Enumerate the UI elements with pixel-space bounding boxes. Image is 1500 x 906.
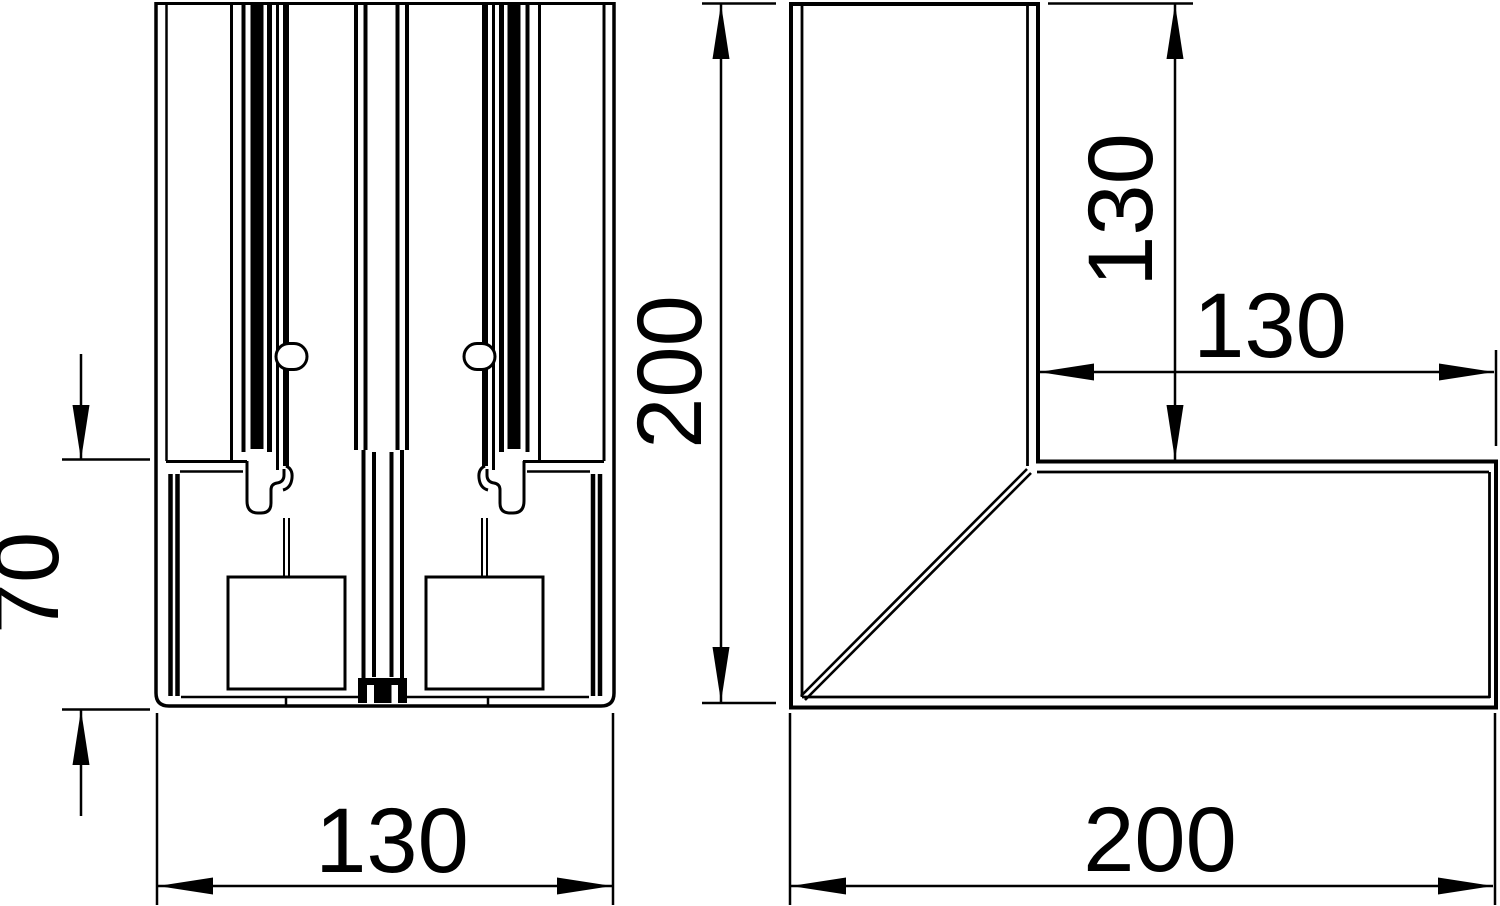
dimension-label: 200: [619, 295, 721, 449]
dimension-corner-width: 200: [790, 713, 1495, 905]
dimension-corner-height: 200: [619, 4, 776, 704]
corner-view: [789, 2, 1498, 709]
dimension-arrow: [1439, 364, 1494, 381]
dimension-arrow: [713, 647, 730, 702]
section-hook: [479, 461, 524, 513]
dimension-arrow: [73, 710, 90, 765]
section-device-box: [426, 577, 543, 689]
dimension-arrow: [1438, 878, 1493, 895]
dimension-arrow: [1167, 405, 1184, 460]
section-retainer-bulge: [464, 344, 495, 370]
section-hook: [247, 461, 292, 513]
section-outer-contour: [156, 2, 614, 706]
dimension-corner-leg-vertical: 130: [1048, 4, 1193, 461]
dimension-arrow: [73, 405, 90, 460]
dimension-arrow: [1039, 364, 1094, 381]
dimension-arrow: [713, 4, 730, 59]
dimension-label: 70: [0, 532, 78, 634]
dimension-corner-leg-horizontal: 130: [1039, 275, 1496, 446]
dimension-arrow: [557, 878, 612, 895]
dimension-arrow: [791, 878, 846, 895]
dimension-arrow: [158, 878, 213, 895]
dimension-label: 130: [1193, 275, 1347, 377]
corner-miter-fold: [801, 469, 1027, 696]
section-device-box: [228, 577, 345, 689]
corner-miter-fold: [805, 473, 1031, 700]
section-partition-foot: [358, 678, 407, 703]
dimension-label: 130: [315, 790, 469, 892]
dimension-section-width: 130: [157, 713, 613, 905]
section-view: [156, 2, 614, 706]
dimension-arrow: [1167, 4, 1184, 59]
dimension-label: 130: [1070, 133, 1172, 287]
section-retainer-bulge: [276, 344, 307, 370]
dimension-section-depth: 70: [0, 354, 150, 816]
technical-drawing: 70 130 200 130: [0, 0, 1500, 906]
dimensions: 70 130 200 130: [0, 4, 1496, 906]
dimension-label: 200: [1083, 789, 1237, 891]
